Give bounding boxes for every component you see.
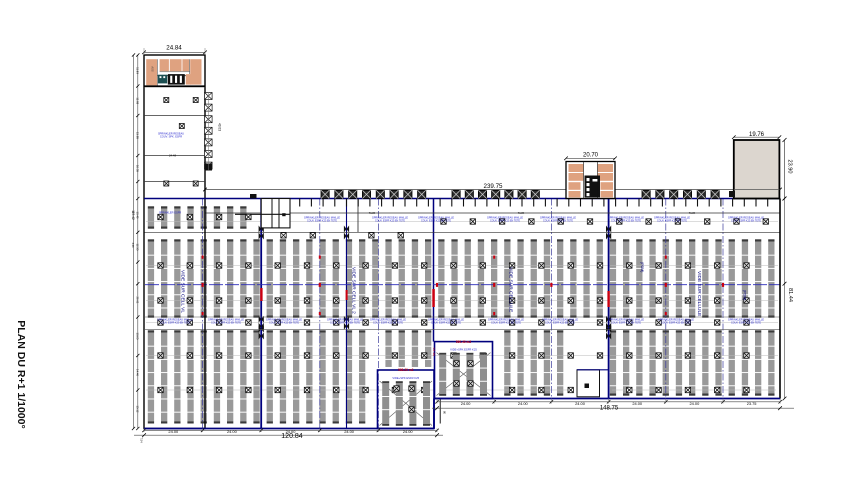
svg-text:12.55: 12.55 <box>135 244 139 251</box>
svg-text:13.05: 13.05 <box>135 333 139 340</box>
svg-text:VIDE SUR CELLULE: VIDE SUR CELLULE <box>508 267 514 312</box>
svg-text:COUV. ESFR K25 EN TETE: COUV. ESFR K25 EN TETE <box>661 322 691 325</box>
svg-text:CF 2H: CF 2H <box>432 348 436 357</box>
svg-text:(PDM): (PDM) <box>640 262 644 272</box>
svg-text:24.00: 24.00 <box>227 429 238 434</box>
svg-text:20.61: 20.61 <box>135 297 139 304</box>
svg-text:115.42: 115.42 <box>131 210 135 220</box>
svg-text:COUV. ESFR K25 EN TETE: COUV. ESFR K25 EN TETE <box>731 322 761 325</box>
svg-text:COUV. ESFR K25 EN TETE: COUV. ESFR K25 EN TETE <box>307 220 337 223</box>
svg-text:81.44: 81.44 <box>787 288 793 302</box>
svg-text:COUV. ESFR K25 EN TETE: COUV. ESFR K25 EN TETE <box>421 220 451 223</box>
svg-text:COUV. ESFR K25 EN TETE: COUV. ESFR K25 EN TETE <box>431 322 461 325</box>
svg-text:COUV. SPK. ESFR: COUV. SPK. ESFR <box>160 135 182 139</box>
svg-text:24.00: 24.00 <box>403 429 414 434</box>
svg-text:71.84: 71.84 <box>369 211 376 215</box>
svg-text:120.84: 120.84 <box>281 433 303 440</box>
svg-text:COUV. ESFR K25 EN TETE: COUV. ESFR K25 EN TETE <box>545 322 575 325</box>
svg-text:COUV. ESFR K25 EN TETE: COUV. ESFR K25 EN TETE <box>373 322 403 325</box>
svg-text:24.00: 24.00 <box>344 429 355 434</box>
svg-text:VIDE SUR CELL VL: VIDE SUR CELL VL <box>180 270 186 313</box>
svg-text:VIDE SUR CELL VL 2: VIDE SUR CELL VL 2 <box>350 267 356 314</box>
svg-text:COUV. ESFR K25 EN TETE: COUV. ESFR K25 EN TETE <box>657 220 687 223</box>
svg-text:14.46: 14.46 <box>135 369 139 376</box>
svg-text:COUV. ESFR K25 EN TETE: COUV. ESFR K25 EN TETE <box>160 322 190 325</box>
svg-text:24.00: 24.00 <box>690 401 701 406</box>
svg-text:24.00: 24.00 <box>575 401 586 406</box>
svg-text:PLAN DU R+1 1/1000°: PLAN DU R+1 1/1000° <box>15 320 27 428</box>
svg-text:11.93: 11.93 <box>135 67 139 74</box>
svg-text:COUV. ESFR K25 EN TETE: COUV. ESFR K25 EN TETE <box>490 220 520 223</box>
svg-text:COUV. ESFR K25 EN TETE: COUV. ESFR K25 EN TETE <box>543 220 573 223</box>
svg-text:VIDE SUR CELLULE: VIDE SUR CELLULE <box>696 271 702 316</box>
svg-text:11.93: 11.93 <box>135 97 139 104</box>
svg-text:15.12: 15.12 <box>135 406 139 413</box>
svg-text:VIDE+SPK ESFR K25: VIDE+SPK ESFR K25 <box>450 348 477 352</box>
svg-text:ASS: ASS <box>151 66 155 71</box>
svg-text:71.84: 71.84 <box>689 211 696 215</box>
svg-text:19.76: 19.76 <box>749 132 765 138</box>
svg-text:COUV. ESFR K25 EN TETE: COUV. ESFR K25 EN TETE <box>491 322 521 325</box>
svg-text:(PDM): (PDM) <box>743 290 747 300</box>
svg-text:20.70: 20.70 <box>583 152 599 158</box>
svg-text:10.55: 10.55 <box>135 165 139 172</box>
svg-text:COUV. ESFR K25 EN TETE: COUV. ESFR K25 EN TETE <box>375 220 405 223</box>
svg-text:24.00: 24.00 <box>461 401 472 406</box>
svg-text:4.24: 4.24 <box>131 242 135 248</box>
svg-text:COUV. ESFR K25 EN TETE: COUV. ESFR K25 EN TETE <box>611 322 641 325</box>
svg-text:COUV. ESFR K25 EN TETE: COUV. ESFR K25 EN TETE <box>269 322 299 325</box>
svg-text:588.20 m2: 588.20 m2 <box>398 368 413 372</box>
svg-text:49.03: 49.03 <box>218 123 222 131</box>
svg-text:24.00: 24.00 <box>168 429 179 434</box>
svg-text:23.75: 23.75 <box>747 401 757 406</box>
svg-text:7.54: 7.54 <box>140 437 144 443</box>
svg-text:148.75: 148.75 <box>600 406 619 412</box>
svg-text:COUV. ESFR K25 EN TETE: COUV. ESFR K25 EN TETE <box>611 220 641 223</box>
svg-text:71.84: 71.84 <box>518 211 525 215</box>
svg-text:24.84: 24.84 <box>166 45 182 52</box>
svg-text:24.00: 24.00 <box>518 401 529 406</box>
svg-text:COUV. ESFR K25 EN TETE: COUV. ESFR K25 EN TETE <box>330 322 360 325</box>
svg-text:COUV. ESFR K25 EN TETE: COUV. ESFR K25 EN TETE <box>731 220 761 223</box>
svg-text:15.95: 15.95 <box>135 132 139 139</box>
svg-text:COUV. ESFR K25 EN TETE: COUV. ESFR K25 EN TETE <box>211 322 241 325</box>
svg-text:23.90: 23.90 <box>787 160 793 174</box>
svg-text:24.00: 24.00 <box>632 401 643 406</box>
svg-text:80: 80 <box>443 411 447 415</box>
svg-text:239.75: 239.75 <box>484 183 503 190</box>
svg-text:SPRINKLER ESFR: SPRINKLER ESFR <box>159 211 181 215</box>
svg-text:590.40 m2: 590.40 m2 <box>456 340 471 344</box>
svg-text:VIDE+SPK ESFR K25: VIDE+SPK ESFR K25 <box>392 376 419 380</box>
svg-text:24.48: 24.48 <box>169 154 176 158</box>
